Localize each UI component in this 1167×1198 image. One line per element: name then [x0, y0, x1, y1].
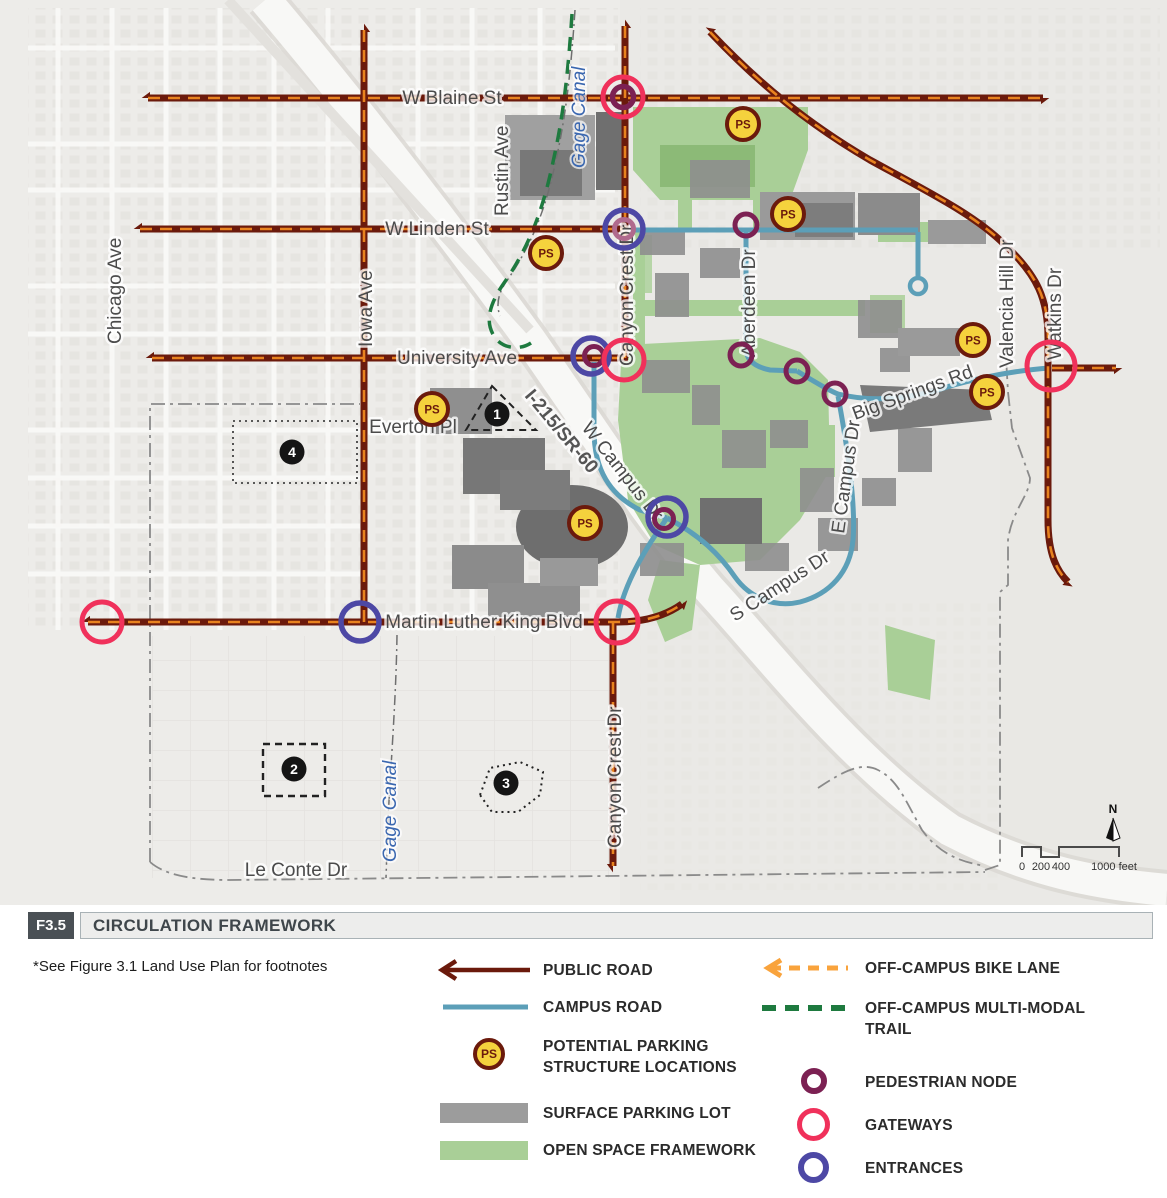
label-gage-canal-south: Gage Canal [380, 760, 401, 862]
ps-badge: PS [727, 108, 759, 140]
ps-badge: PS [772, 198, 804, 230]
circulation-map: W Blaine St W Linden St University Ave E… [0, 0, 1167, 905]
ps-badge: PS [569, 507, 601, 539]
legend-trail-line1: OFF-CAMPUS MULTI-MODAL [865, 1000, 1085, 1017]
ps-badge-label: PS [424, 405, 440, 417]
label-valencia: Valencia Hill Dr [997, 239, 1018, 368]
label-le-conte: Le Conte Dr [245, 860, 348, 881]
ps-badge-label: PS [735, 120, 751, 132]
figure-page: W Blaine St W Linden St University Ave E… [0, 0, 1167, 1198]
legend-ps-line1: POTENTIAL PARKING [543, 1038, 709, 1055]
legend-trail-line2: TRAIL [865, 1021, 912, 1038]
legend-multi-modal-label: OFF-CAMPUS MULTI-MODALTRAIL [865, 998, 1085, 1040]
legend-bike-lane-label: OFF-CAMPUS BIKE LANE [865, 958, 1060, 979]
area-4-label: 4 [288, 444, 296, 460]
pedestrian-node-symbol [801, 1068, 827, 1094]
legend-ps-label: POTENTIAL PARKINGSTRUCTURE LOCATIONS [543, 1036, 737, 1078]
label-aberdeen: Aberdeen Dr [739, 249, 760, 357]
figure-number-badge: F3.5 [28, 912, 74, 939]
label-iowa: Iowa Ave [356, 270, 377, 347]
north-label: N [1109, 802, 1118, 816]
ps-badge-label: PS [538, 249, 554, 261]
label-university: University Ave [397, 348, 517, 369]
legend-surface-parking-label: SURFACE PARKING LOT [543, 1103, 731, 1124]
label-rustin: Rustin Ave [492, 126, 513, 216]
ps-symbol: PS [473, 1038, 505, 1070]
label-chicago: Chicago Ave [105, 238, 126, 344]
legend-pedestrian-node-label: PEDESTRIAN NODE [865, 1072, 1017, 1093]
entrance-symbol [798, 1152, 829, 1183]
label-gage-canal-north: Gage Canal [569, 66, 590, 168]
ps-badge: PS [530, 237, 562, 269]
area-1-label: 1 [493, 406, 501, 422]
label-canyon-crest-south: Canyon Crest Dr [605, 706, 626, 848]
scale-200: 200 [1032, 861, 1050, 873]
area-marker-1: 1 [485, 402, 510, 427]
open-space-swatch [440, 1141, 528, 1160]
multi-modal-symbol [758, 1001, 850, 1015]
legend-open-space-label: OPEN SPACE FRAMEWORK [543, 1140, 756, 1161]
ps-badge-label: PS [577, 519, 593, 531]
ps-badge: PS [416, 393, 448, 425]
area-marker-4: 4 [280, 440, 305, 465]
legend-campus-road-label: CAMPUS ROAD [543, 997, 662, 1018]
legend-ps-line2: STRUCTURE LOCATIONS [543, 1059, 737, 1076]
ps-badge: PS [971, 376, 1003, 408]
bike-lane-symbol [760, 957, 852, 979]
legend-entrances-label: ENTRANCES [865, 1158, 963, 1179]
ps-badge-label: PS [965, 336, 981, 348]
label-w-blaine: W Blaine St [402, 88, 502, 109]
figure-title: CIRCULATION FRAMEWORK [80, 912, 1153, 939]
scale-1000: 1000 feet [1091, 861, 1137, 873]
area-3-label: 3 [502, 775, 510, 791]
area-marker-3: 3 [494, 771, 519, 796]
ps-badge-label: PS [780, 210, 796, 222]
public-road-symbol [432, 958, 537, 982]
ps-badge-label: PS [979, 388, 995, 400]
gateway-symbol [797, 1108, 830, 1141]
scale-400: 400 [1052, 861, 1070, 873]
surface-parking-swatch [440, 1103, 528, 1123]
label-mlk: Martin Luther King Blvd [385, 612, 583, 633]
legend-public-road-label: PUBLIC ROAD [543, 960, 653, 981]
ps-badge: PS [957, 324, 989, 356]
label-w-linden: W Linden St [385, 219, 489, 240]
legend-gateways-label: GATEWAYS [865, 1115, 953, 1136]
campus-road-symbol [440, 1001, 530, 1013]
area-2-label: 2 [290, 761, 298, 777]
area-marker-2: 2 [282, 757, 307, 782]
footnote: *See Figure 3.1 Land Use Plan for footno… [33, 958, 327, 975]
scale-0: 0 [1019, 861, 1025, 873]
